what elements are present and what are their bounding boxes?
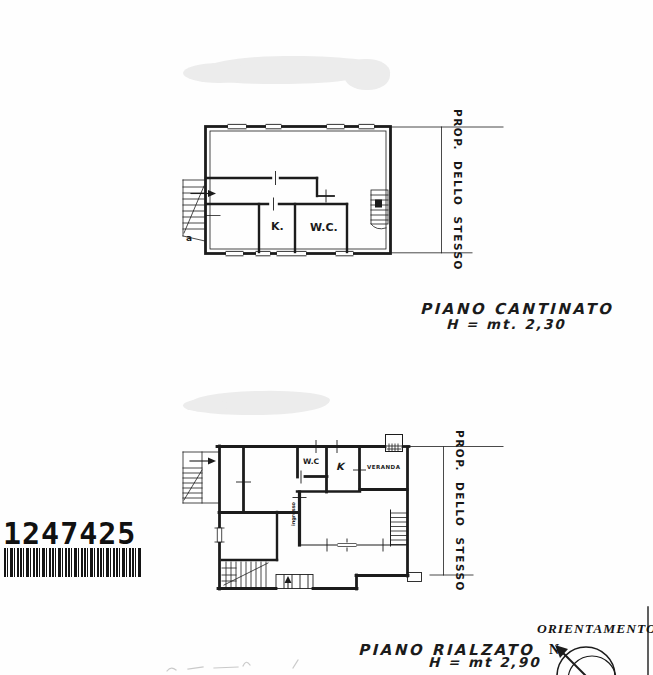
cantinato-exterior-stair [183, 180, 205, 241]
cantinato-entry-arrow [191, 190, 216, 197]
cantinato-boundary-lines [391, 127, 503, 253]
barcode-bars [4, 548, 142, 577]
rialzato-entrance-steps [276, 575, 313, 589]
height-note-cantinato: H = mt. 2,30 [446, 316, 566, 332]
cantinato-interior-walls [206, 172, 347, 253]
orientation-title: ORIENTAMENTO [537, 621, 653, 637]
cantinato-interior-stair [371, 190, 388, 229]
rialzato-right-foot [408, 573, 422, 582]
cutoff-handwriting [167, 660, 298, 671]
rialzato-entry-arrow [190, 458, 216, 465]
room-label-wc-rialzato: W.C [303, 457, 319, 466]
height-note-rialzato: H = mt 2,90 [428, 654, 541, 670]
room-label-veranda: VERANDA [367, 464, 400, 470]
boundary-label-cantinato: PROP. DELLO STESSO [452, 109, 464, 271]
rialzato-right-stair [391, 510, 408, 546]
rialzato-left-window [215, 528, 224, 542]
scanned-floorplan-page: 1247425 K. W.C. a PROP. DELLO STESSO PIA… [0, 0, 653, 675]
room-label-kitchen-cantinato: K. [271, 220, 284, 233]
north-label: N [549, 642, 559, 658]
stair-mark-label: a [186, 233, 192, 243]
room-label-wc-cantinato: W.C. [310, 221, 338, 234]
barcode-number: 1247425 [3, 519, 136, 549]
rialzato-exterior-stair [183, 452, 219, 503]
room-label-kitchen-rialzato: K [336, 461, 344, 472]
compass [555, 645, 616, 675]
room-label-ingresso: ingresso [290, 502, 296, 526]
rialzato-chimney [386, 435, 403, 452]
boundary-label-rialzato: PROP. DELLO STESSO [454, 430, 466, 592]
rialzato-winder-stair [222, 562, 268, 587]
